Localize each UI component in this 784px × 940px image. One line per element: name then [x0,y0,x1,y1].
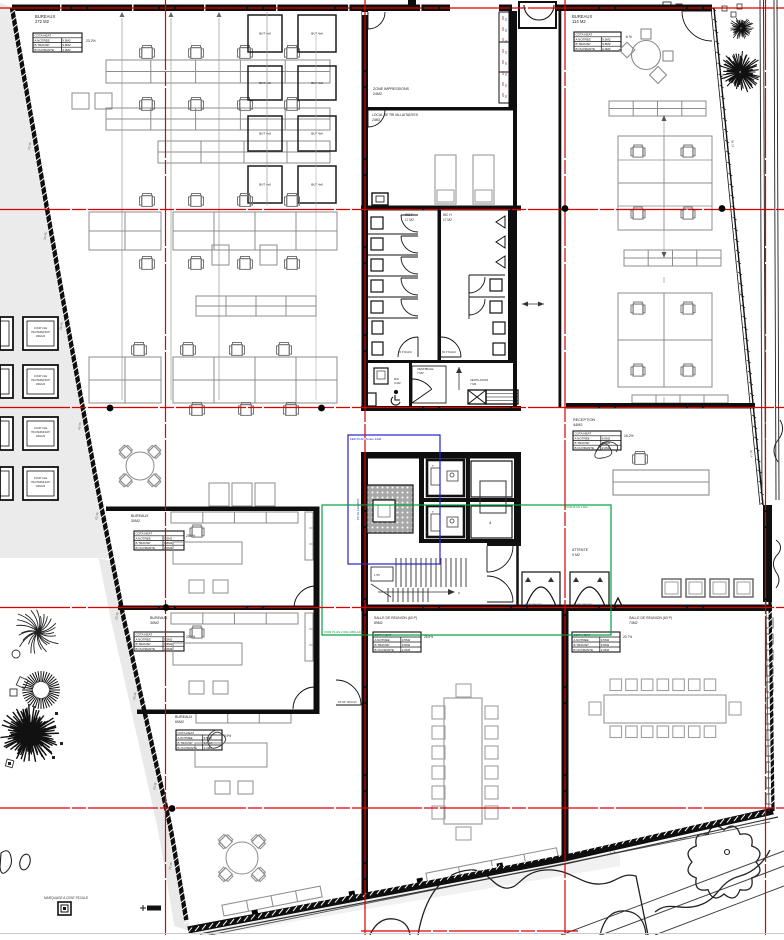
svg-text:COUP CLE: COUP CLE [34,374,47,378]
svg-text:A NOTREE: A NOTREE [178,736,193,740]
svg-text:A NOTREE: A NOTREE [575,436,590,440]
svg-text:B OUVRANTE: B OUVRANTE [35,48,55,52]
svg-text:BUREAUX: BUREAUX [131,514,149,518]
svg-text:COTA HEAT: COTA HEAT [576,33,593,37]
svg-text:RF P 60x210: RF P 60x210 [398,351,413,354]
svg-text:VOIR PLAN 2.602: VOIR PLAN 2.602 [565,505,588,509]
svg-text:BUT 4x6: BUT 4x6 [259,183,271,187]
svg-text:114 M2: 114 M2 [572,19,586,24]
svg-text:3 M2: 3 M2 [394,381,401,385]
svg-text:COUP CLE: COUP CLE [34,326,47,330]
svg-text:RECEPTION: RECEPTION [573,418,595,422]
svg-text:B OUVRANTE: B OUVRANTE [136,647,156,651]
svg-text:A NOTREE: A NOTREE [136,536,151,540]
svg-text:7 M2: 7 M2 [417,371,424,375]
svg-text:VOIR PLAN 2.602.4456-1446: VOIR PLAN 2.602.4456-1446 [324,630,364,634]
svg-text:9.5M2: 9.5M2 [601,638,610,642]
svg-text:ZONE IMPRESSIONS: ZONE IMPRESSIONS [373,87,410,91]
svg-text:B TRANSP: B TRANSP [375,643,390,647]
svg-text:A NOTREE: A NOTREE [136,637,151,641]
svg-text:A NOTREE: A NOTREE [576,37,591,41]
svg-text:BUT 4x6: BUT 4x6 [259,32,271,36]
svg-text:7 M2: 7 M2 [470,382,477,386]
svg-text:B OUVRANTE: B OUVRANTE [574,648,594,652]
svg-text:RF P 60x210: RF P 60x210 [442,351,457,354]
svg-text:B OUVRANTE: B OUVRANTE [575,446,595,450]
svg-text:TRA HEPAR ENT: TRA HEPAR ENT [31,481,50,484]
svg-text:SALLE DE REUNION (63 P): SALLE DE REUNION (63 P) [629,616,672,620]
svg-text:2.0M2: 2.0M2 [62,48,71,52]
svg-text:36.14: 36.14 [749,450,754,458]
svg-text:COTA HEAT: COTA HEAT [136,633,153,637]
svg-text:LOCAL DE TRI /ALLAITANTES: LOCAL DE TRI /ALLAITANTES [372,113,419,117]
svg-text:COTA HEAT: COTA HEAT [35,34,52,38]
svg-text:B TRANSP: B TRANSP [35,43,50,47]
svg-text:B OUVRANTE: B OUVRANTE [136,546,156,550]
svg-text:RF NP 100x210: RF NP 100x210 [338,700,357,704]
svg-text:B TRANSP: B TRANSP [576,42,591,46]
svg-text:B OUVRANTE: B OUVRANTE [178,746,198,750]
svg-text:9.8M2: 9.8M2 [62,43,71,47]
svg-text:SALLE DE REUNION (63 P): SALLE DE REUNION (63 P) [374,616,417,620]
svg-text:MCP 100x210: MCP 100x210 [525,603,542,607]
svg-text:36.14: 36.14 [730,140,735,148]
svg-text:COTA HEAT: COTA HEAT [136,532,153,536]
svg-text:B TRANSP: B TRANSP [136,642,151,646]
svg-text:B OUVRANTE: B OUVRANTE [375,648,395,652]
svg-text:9.5M2: 9.5M2 [402,638,411,642]
svg-text:30M2: 30M2 [131,519,140,523]
svg-text:BUT 4x6: BUT 4x6 [311,183,323,187]
svg-text:CA PC 100x210: CA PC 100x210 [573,603,592,607]
svg-text:74M2: 74M2 [629,621,638,625]
svg-text:17 M2: 17 M2 [405,218,414,222]
svg-text:B TRANSP: B TRANSP [574,643,589,647]
svg-text:24M2: 24M2 [372,118,380,122]
svg-text:180x120: 180x120 [36,335,46,338]
svg-text:180x120: 180x120 [36,383,46,386]
svg-text:17 M2: 17 M2 [443,218,452,222]
svg-text:23.2%: 23.2% [86,39,96,43]
svg-text:16.2%: 16.2% [624,434,634,438]
svg-text:24M2: 24M2 [373,92,382,96]
svg-text:1.55: 1.55 [374,573,380,577]
svg-text:COTA HEAT: COTA HEAT [178,731,195,735]
svg-text:180x120: 180x120 [36,435,46,438]
svg-text:A NOTREE: A NOTREE [375,638,390,642]
svg-text:TRA HEPAR ENT: TRA HEPAR ENT [31,379,50,382]
svg-text:272 M2: 272 M2 [35,19,50,24]
svg-text:9 M2: 9 M2 [572,553,580,557]
svg-text:T: T [432,464,434,468]
svg-text:BUT 4x6: BUT 4x6 [259,81,271,85]
svg-text:PC FE 120x2000: PC FE 120x2000 [356,498,360,520]
svg-text:B TRANSP: B TRANSP [178,741,193,745]
svg-text:BUT 4x6: BUT 4x6 [311,81,323,85]
svg-text:20.7%: 20.7% [623,635,632,639]
svg-text:9.5M2: 9.5M2 [62,38,71,42]
svg-text:MARQUAGE A CENT FECULE: MARQUAGE A CENT FECULE [44,896,88,900]
svg-text:9.8M2: 9.8M2 [602,42,611,46]
svg-text:B TRANSP: B TRANSP [575,441,590,445]
svg-text:BUT 4x6: BUT 4x6 [259,132,271,136]
svg-text:COTA HEAT: COTA HEAT [575,432,592,436]
svg-text:B TRANSP: B TRANSP [136,541,151,545]
svg-text:COUP CLE: COUP CLE [34,426,47,430]
svg-text:60M2: 60M2 [175,720,184,724]
svg-text:BUREAUX: BUREAUX [175,715,193,719]
svg-text:89M2: 89M2 [374,621,383,625]
svg-text:30M2: 30M2 [150,621,159,625]
svg-text:1ER PLAN Zones 1446: 1ER PLAN Zones 1446 [350,437,382,441]
svg-text:9.5M2: 9.5M2 [602,436,611,440]
svg-text:2.0M2: 2.0M2 [402,648,411,652]
svg-text:180x120: 180x120 [36,485,46,488]
svg-text:WC H: WC H [443,213,452,217]
svg-text:TRA HEPAR ENT: TRA HEPAR ENT [31,331,50,334]
svg-text:TRA HEPAR ENT: TRA HEPAR ENT [31,431,50,434]
svg-text:44M2: 44M2 [573,423,583,427]
svg-text:A NOTREE: A NOTREE [35,38,50,42]
svg-text:2.0M2: 2.0M2 [602,47,611,51]
svg-text:T: T [432,510,434,514]
svg-text:BUT 4x6: BUT 4x6 [311,132,323,136]
svg-text:x: x [458,590,460,595]
svg-text:9.8M2: 9.8M2 [402,643,411,647]
svg-text:ATTENTE: ATTENTE [572,548,589,552]
svg-text:A NOTREE: A NOTREE [574,638,589,642]
svg-text:9.5M2: 9.5M2 [602,37,611,41]
svg-text:2.0M2: 2.0M2 [601,648,610,652]
svg-text:6 %: 6 % [626,35,632,39]
svg-text:9.8M2: 9.8M2 [601,643,610,647]
svg-text:COUP CLE: COUP CLE [34,476,47,480]
svg-text:B OUVRANTE: B OUVRANTE [576,47,596,51]
svg-text:BUT 4x6: BUT 4x6 [311,32,323,36]
